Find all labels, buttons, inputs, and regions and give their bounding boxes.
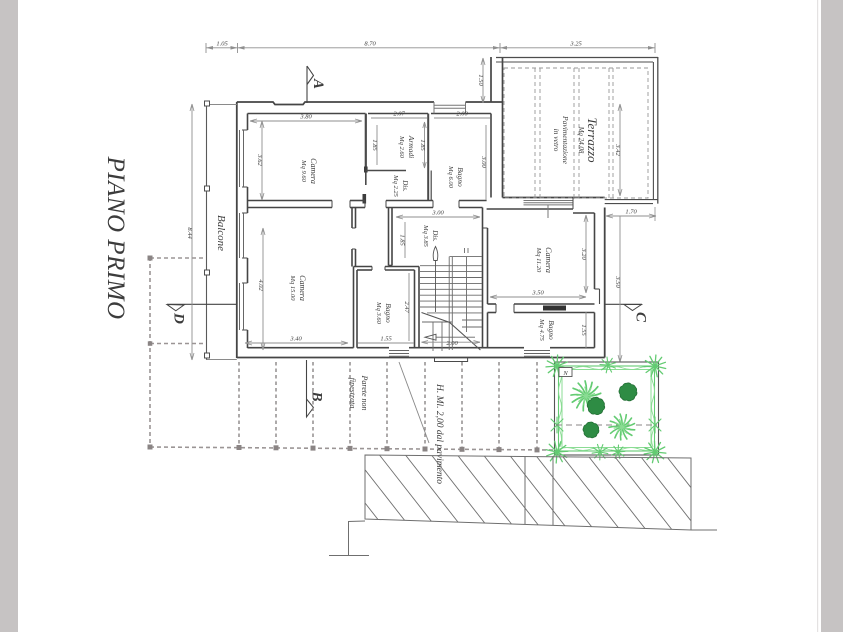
svg-text:Mq 2.60: Mq 2.60 (398, 135, 405, 158)
svg-text:3.50: 3.50 (531, 290, 544, 297)
svg-text:4.02: 4.02 (257, 279, 264, 291)
svg-text:Mq 3.85: Mq 3.85 (422, 224, 429, 247)
svg-text:1.50: 1.50 (477, 74, 484, 86)
svg-text:3.00: 3.00 (431, 210, 444, 217)
svg-text:Terrazzo: Terrazzo (585, 117, 600, 163)
svg-text:Mq 9.60: Mq 9.60 (300, 159, 307, 182)
svg-text:Mq 11.20: Mq 11.20 (535, 247, 542, 273)
svg-text:3.00: 3.00 (480, 155, 487, 168)
svg-text:Bagno: Bagno (456, 167, 465, 187)
svg-text:3.50: 3.50 (614, 275, 621, 288)
svg-text:Pavimentazione: Pavimentazione (561, 115, 570, 165)
svg-text:A: A (310, 78, 326, 89)
svg-text:Parete non: Parete non (360, 374, 369, 410)
svg-text:8.44: 8.44 (186, 227, 193, 239)
svg-text:3.42: 3.42 (614, 143, 621, 156)
svg-text:D: D (171, 312, 187, 324)
svg-text:N: N (562, 370, 568, 377)
svg-text:3.62: 3.62 (256, 153, 263, 166)
svg-text:finestrata: finestrata (348, 378, 357, 409)
svg-text:Dis.: Dis. (401, 179, 409, 192)
svg-text:8.70: 8.70 (364, 41, 376, 48)
svg-text:Bagno: Bagno (547, 320, 556, 340)
svg-text:2.00: 2.00 (446, 340, 458, 347)
svg-text:Dis.: Dis. (431, 229, 439, 242)
svg-text:Mq 15.00: Mq 15.00 (289, 275, 296, 302)
svg-text:Mq 2.25: Mq 2.25 (392, 174, 399, 197)
svg-text:Armadi: Armadi (407, 135, 416, 159)
svg-text:3.40: 3.40 (289, 336, 302, 343)
svg-text:1.70: 1.70 (625, 209, 637, 216)
svg-text:1.55: 1.55 (380, 336, 392, 343)
svg-text:3.80: 3.80 (299, 114, 312, 121)
svg-text:2.47: 2.47 (403, 301, 410, 313)
svg-text:Camera: Camera (544, 247, 553, 273)
svg-text:Mq 4.75: Mq 4.75 (538, 318, 545, 341)
svg-text:1.05: 1.05 (216, 41, 228, 48)
svg-text:1.85: 1.85 (371, 139, 378, 151)
svg-text:C: C (633, 312, 649, 323)
svg-text:Mq 24.08: Mq 24.08 (577, 126, 585, 154)
svg-text:PIANO PRIMO: PIANO PRIMO (102, 155, 129, 319)
svg-text:3.25: 3.25 (569, 41, 582, 48)
svg-text:in vetro: in vetro (552, 129, 561, 152)
svg-text:3.20: 3.20 (580, 247, 587, 260)
svg-text:Mq 6.00: Mq 6.00 (447, 165, 454, 188)
svg-text:1.85: 1.85 (419, 139, 426, 151)
svg-text:2.00: 2.00 (456, 111, 468, 118)
svg-text:Mq 3.60: Mq 3.60 (375, 301, 382, 324)
svg-text:Bagno: Bagno (384, 303, 393, 323)
svg-text:Balcone: Balcone (215, 215, 227, 251)
svg-text:Camera: Camera (309, 158, 318, 184)
svg-text:B: B (309, 391, 325, 402)
svg-text:1.55: 1.55 (580, 324, 587, 336)
svg-text:Camera: Camera (298, 275, 307, 301)
svg-text:2.07: 2.07 (393, 111, 405, 118)
svg-text:1.85: 1.85 (399, 234, 406, 246)
